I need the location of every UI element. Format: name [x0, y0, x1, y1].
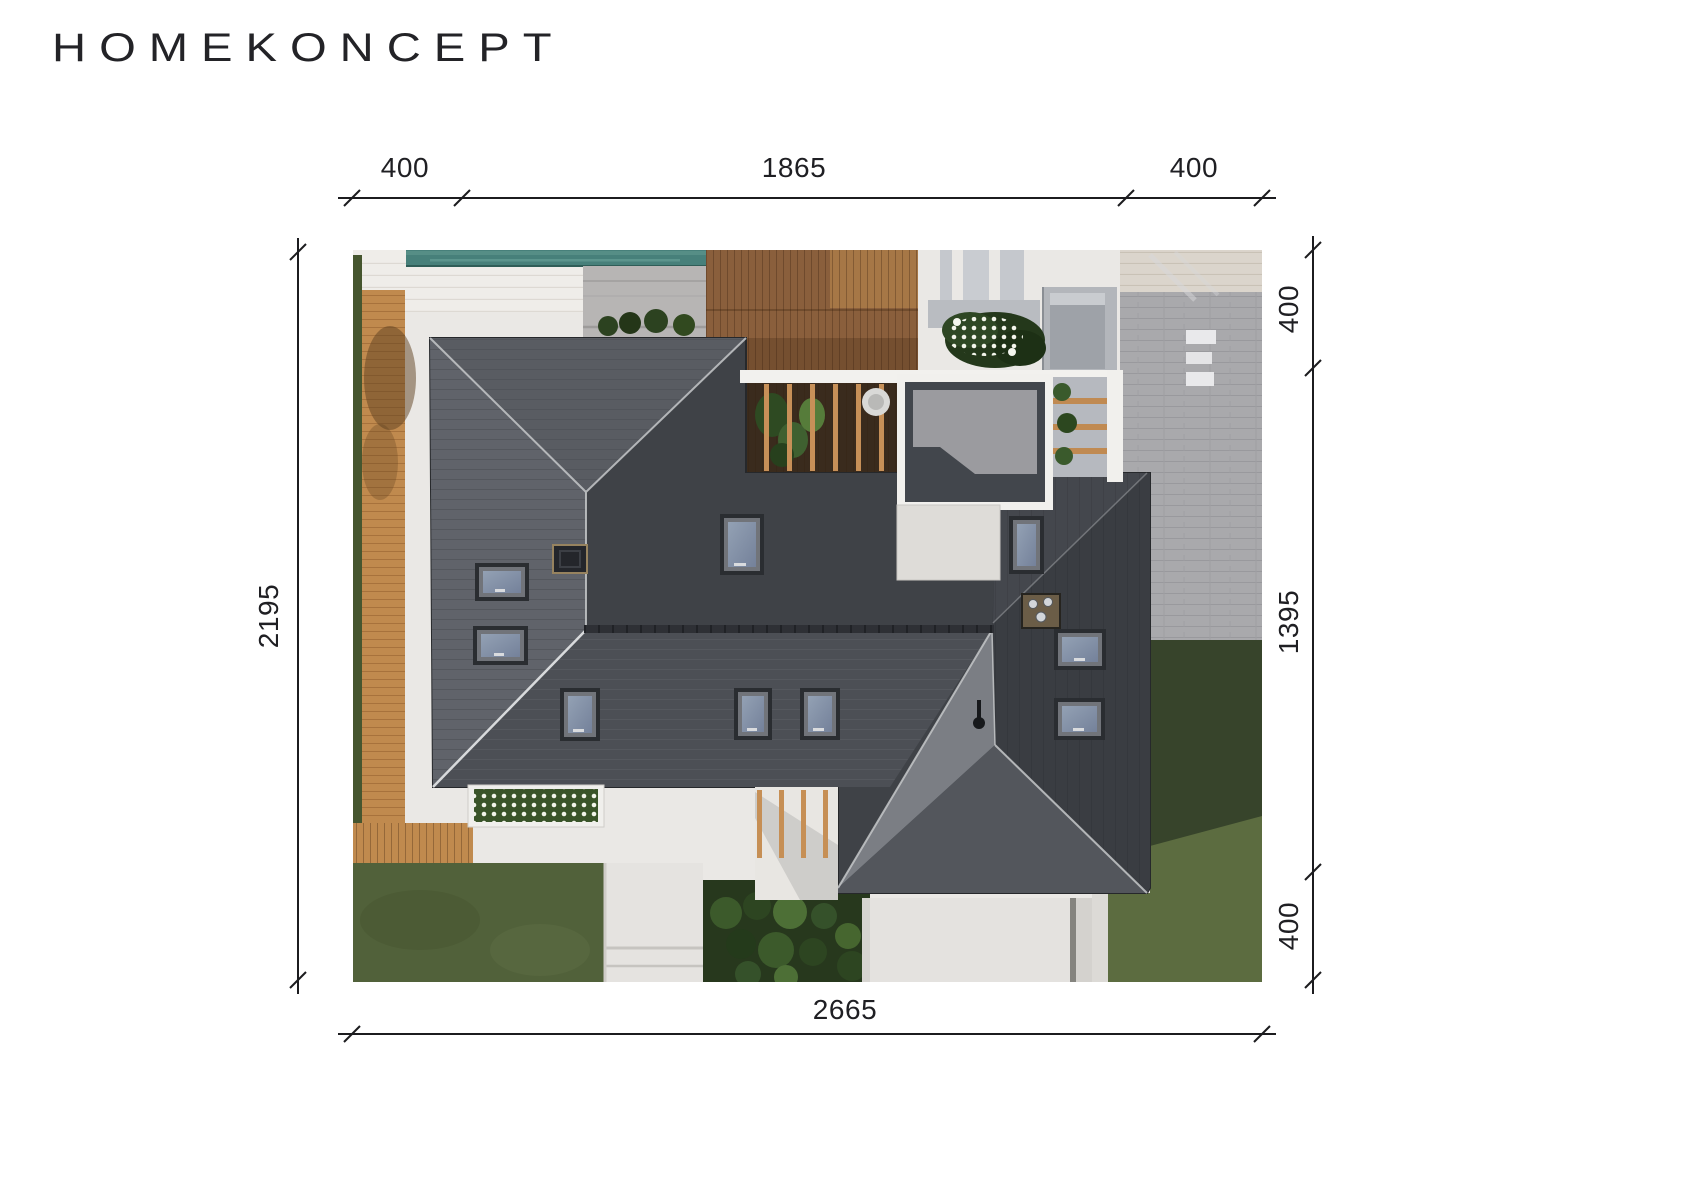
- entrance-path: [605, 863, 703, 982]
- pergola-terrace: [747, 383, 898, 472]
- dim-top-middle: 1865: [762, 152, 827, 184]
- page: { "brand": { "logo_text": "HOMEKONCEPT" …: [0, 0, 1699, 1200]
- lawn-southwest: [353, 863, 605, 982]
- dim-top-left: 400: [381, 152, 429, 184]
- grass-strip: [353, 255, 362, 823]
- utility-enclosure: [1043, 287, 1117, 372]
- south-planter: [468, 785, 604, 827]
- dim-bottom: 2665: [813, 994, 878, 1026]
- garage-driveway: [862, 898, 1092, 982]
- dim-top-right: 400: [1170, 152, 1218, 184]
- skylight: [720, 514, 764, 575]
- skylight: [800, 688, 840, 740]
- side-terrace: [1053, 370, 1123, 482]
- chimney-east: [1022, 594, 1060, 628]
- roof-main-ridge: [584, 625, 994, 633]
- chimney-west: [553, 545, 587, 573]
- dim-left-side: 2195: [253, 584, 285, 649]
- site-plan-svg: [353, 250, 1262, 982]
- skylight: [734, 688, 772, 740]
- porch-flat-roof: [897, 505, 1000, 580]
- brand-logo: HOMEKONCEPT: [52, 26, 565, 71]
- carport-terrace: [755, 787, 838, 900]
- skylight: [1054, 698, 1105, 740]
- dim-right-middle: 1395: [1273, 590, 1305, 655]
- site-plan-render: [353, 250, 1262, 982]
- flat-roof-box: [897, 374, 1053, 510]
- skylight: [475, 563, 529, 601]
- skylight: [1009, 516, 1044, 574]
- skylight: [1054, 629, 1106, 670]
- dim-right-top: 400: [1273, 285, 1305, 333]
- pool: [406, 250, 710, 267]
- skylight: [473, 626, 528, 665]
- dim-right-bottom: 400: [1273, 902, 1305, 950]
- skylight: [560, 688, 600, 741]
